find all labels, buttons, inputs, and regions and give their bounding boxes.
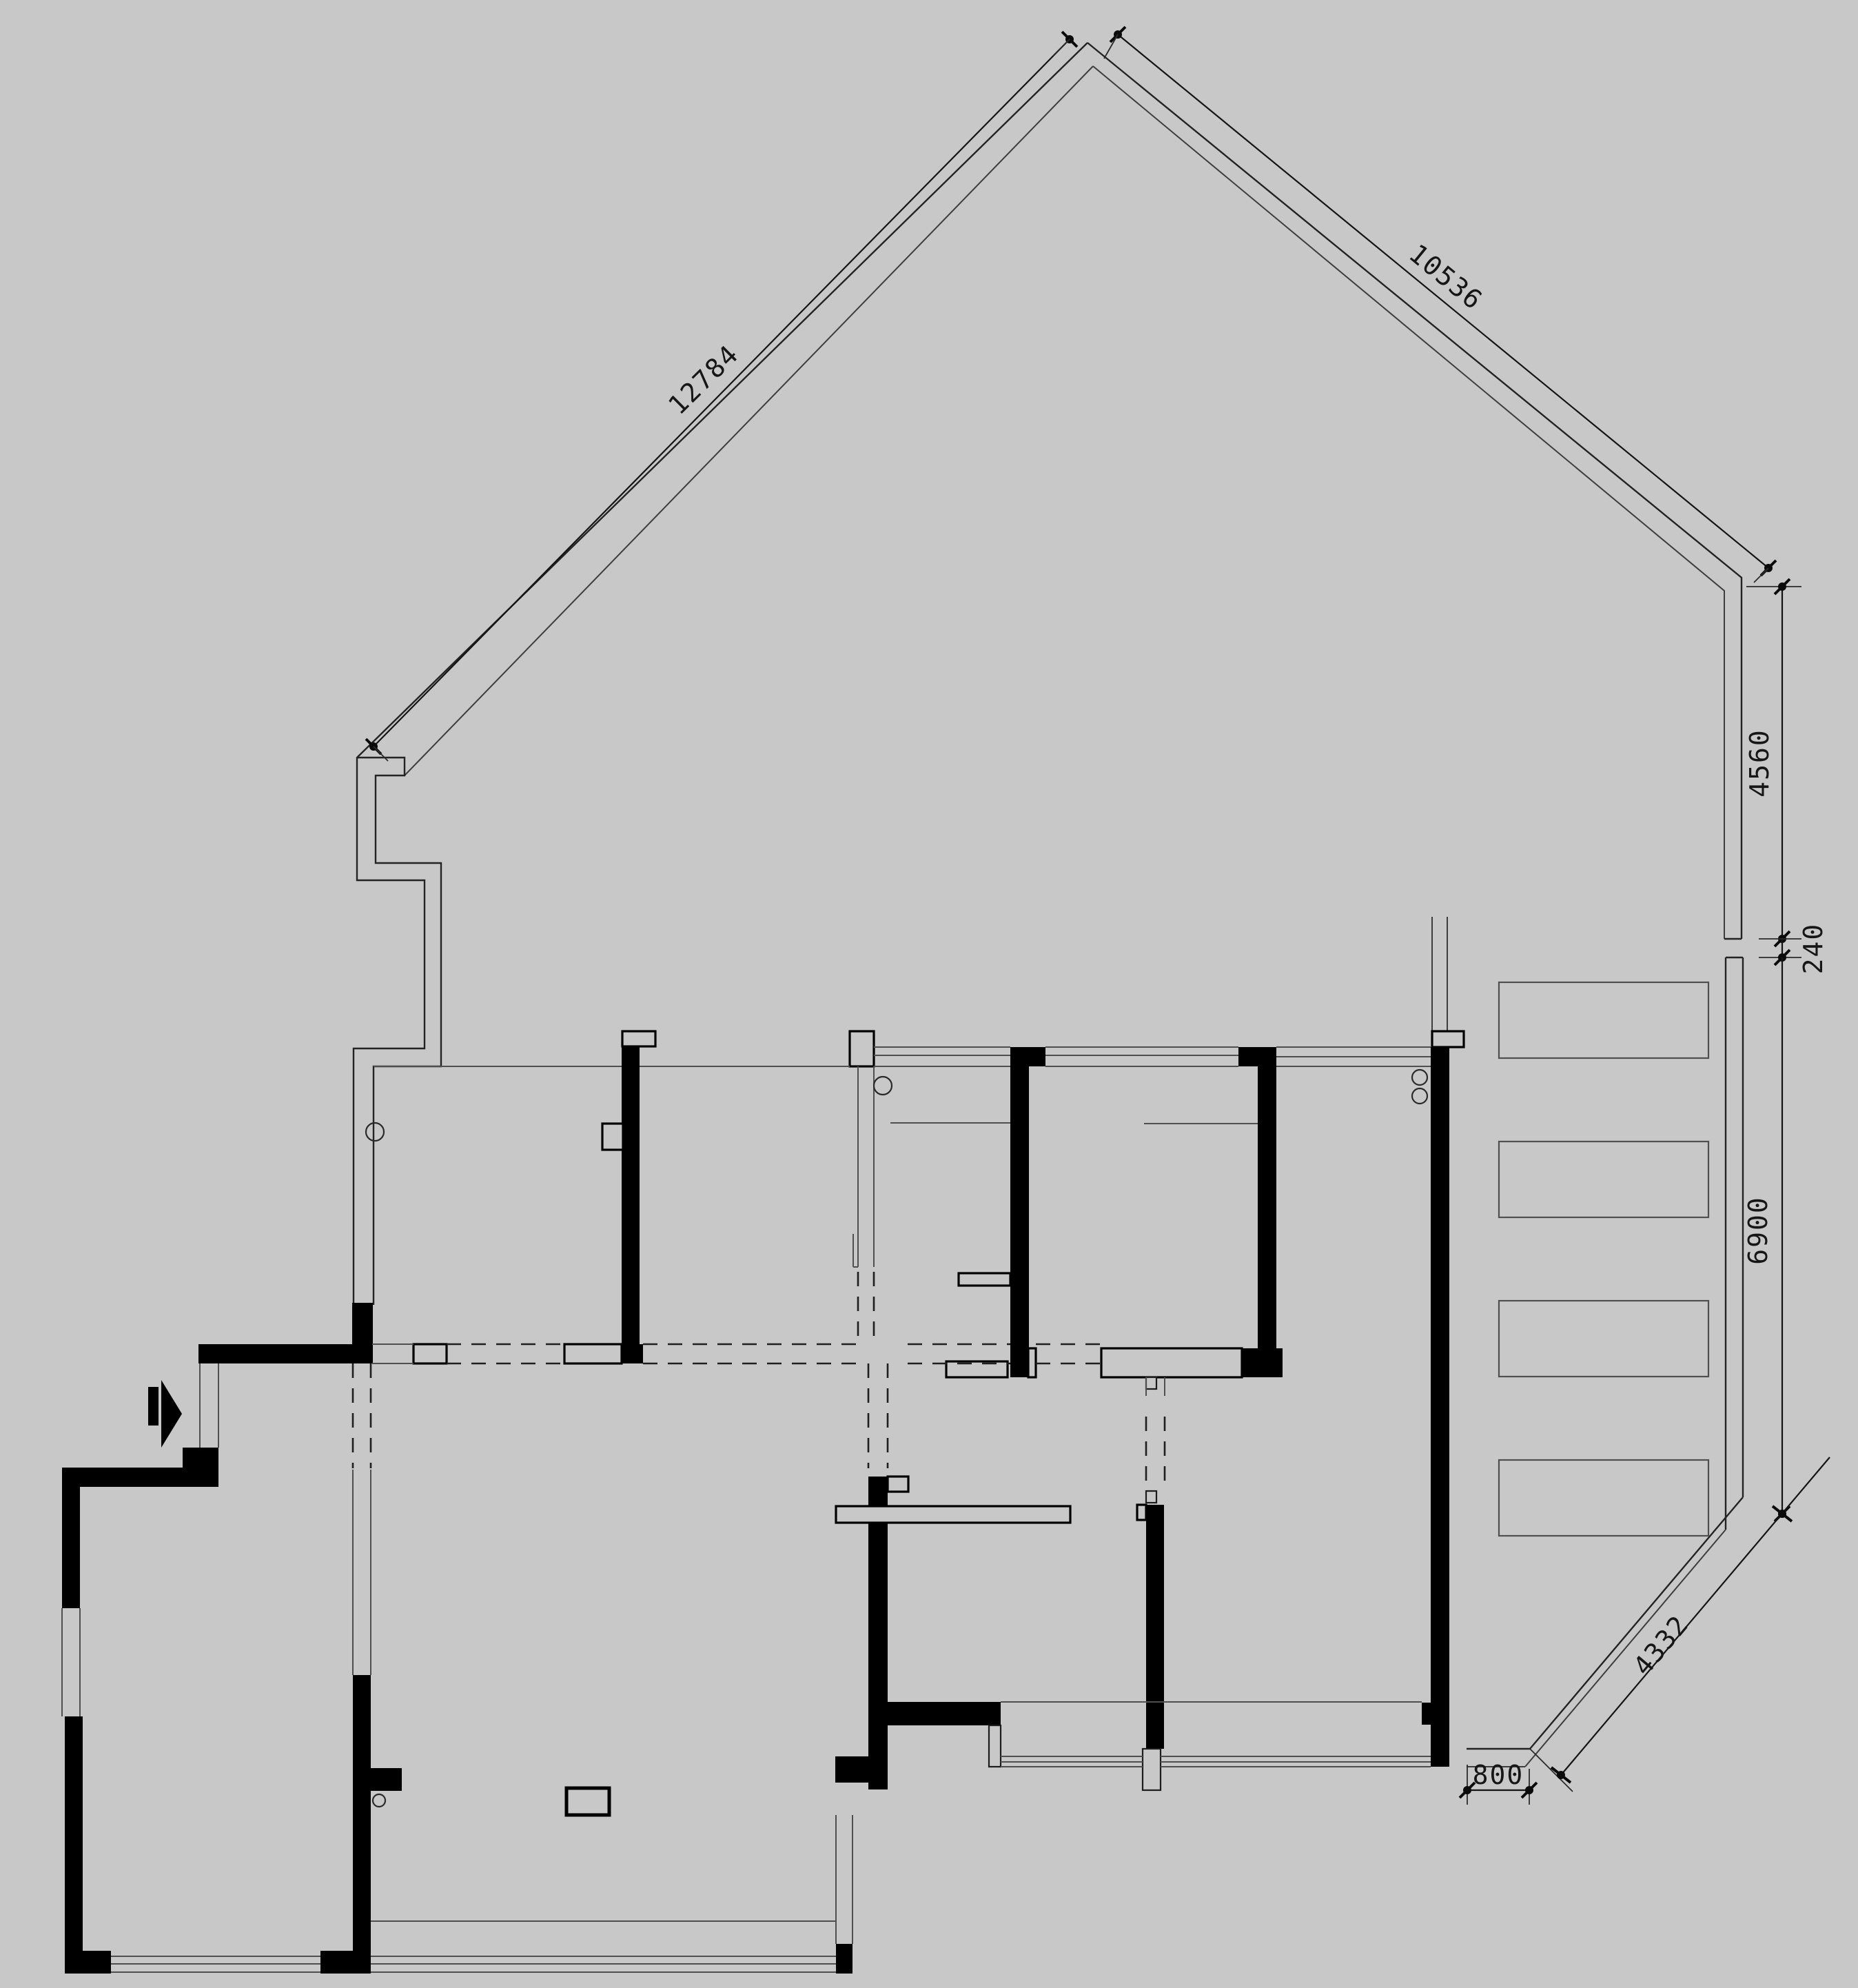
planter-box [1499, 982, 1708, 1058]
dim-label-12784: 12784 [662, 338, 744, 420]
dimension-4560: 4560 [1744, 579, 1801, 946]
pipe-marker-icon [366, 1123, 384, 1141]
dimension-4332: 4332 [1530, 1457, 1830, 1792]
dimension-10536: 10536 [1104, 27, 1776, 582]
dim-label-800: 800 [1473, 1760, 1524, 1790]
interior-lines [62, 1047, 1431, 1972]
planter-box [1499, 1142, 1708, 1217]
pipe-marker-icon [1412, 1070, 1427, 1085]
terrace-planter-boxes [1499, 982, 1708, 1536]
dim-label-6900: 6900 [1743, 1196, 1773, 1265]
pipe-marker-icon [1412, 1088, 1427, 1104]
pipe-marker-icon [874, 1077, 892, 1095]
entry-arrow-icon [148, 1380, 182, 1448]
dimension-240: 240 [1759, 923, 1828, 975]
dim-label-4332: 4332 [1627, 1609, 1695, 1681]
dim-label-240: 240 [1798, 923, 1828, 975]
planter-box [1499, 1460, 1708, 1536]
pipe-marker-icon [373, 1794, 385, 1807]
living-room-column [566, 1788, 609, 1815]
floor-plan-page: 12784 10536 4560 240 6900 4332 [0, 0, 1858, 1988]
dim-label-4560: 4560 [1744, 729, 1775, 798]
planter-box [1499, 1301, 1708, 1377]
dimension-12784: 12784 [366, 32, 1077, 761]
dimension-6900: 6900 [1743, 957, 1790, 1521]
structural-walls [62, 1046, 1449, 1974]
infill-walls [414, 1031, 1464, 1815]
demolished-partitions [353, 1272, 1165, 1489]
floor-plan-canvas: 12784 10536 4560 240 6900 4332 [0, 0, 1858, 1988]
